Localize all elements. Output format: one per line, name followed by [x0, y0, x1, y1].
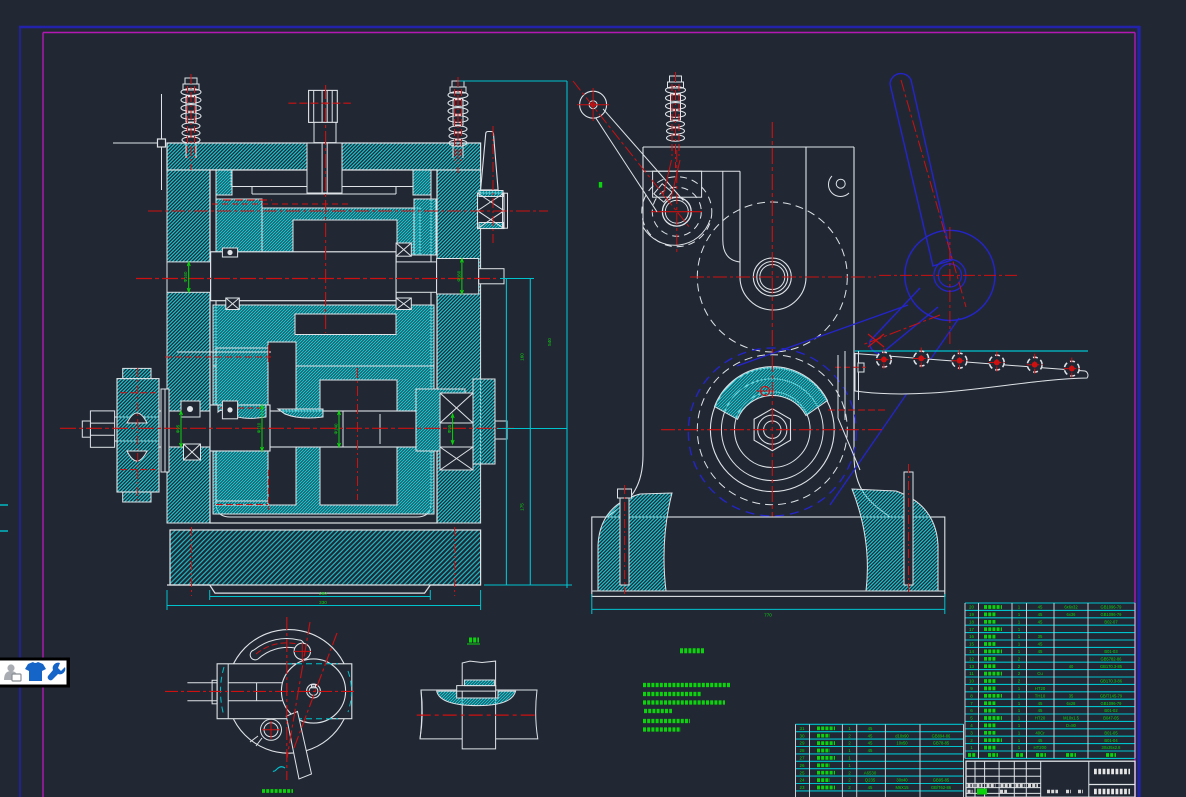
svg-text:45: 45 — [868, 726, 873, 731]
svg-text:GB1096-79: GB1096-79 — [1101, 605, 1123, 610]
svg-text:Φ160: Φ160 — [183, 271, 188, 282]
svg-text:26: 26 — [799, 763, 805, 768]
svg-text:GB894-86: GB894-86 — [932, 733, 951, 738]
svg-text:45: 45 — [1038, 649, 1043, 654]
svg-text:6x6x32: 6x6x32 — [1064, 605, 1078, 610]
svg-text:24: 24 — [799, 778, 805, 783]
svg-text:31: 31 — [799, 726, 805, 731]
svg-text:29: 29 — [799, 741, 805, 746]
svg-text:GB1096-79: GB1096-79 — [1101, 612, 1123, 617]
svg-text:45: 45 — [1038, 619, 1043, 624]
svg-text:28: 28 — [799, 748, 805, 753]
svg-text:18: 18 — [969, 619, 975, 624]
svg-text:35: 35 — [1069, 693, 1074, 698]
svg-text:10: 10 — [969, 679, 975, 684]
svg-text:GB95-85: GB95-85 — [933, 778, 950, 783]
svg-text:B02-07: B02-07 — [1104, 619, 1118, 624]
svg-text:25: 25 — [799, 770, 805, 775]
svg-text:45: 45 — [1038, 701, 1043, 706]
svg-text:GB/T145-79: GB/T145-79 — [1100, 693, 1123, 698]
svg-text:D=80: D=80 — [1066, 723, 1077, 728]
svg-text:45: 45 — [1038, 612, 1043, 617]
svg-text:15: 15 — [969, 642, 975, 647]
svg-text:35: 35 — [1038, 634, 1043, 639]
svg-text:45: 45 — [1038, 642, 1043, 647]
svg-text:B01-05: B01-05 — [1104, 730, 1118, 735]
svg-text:Cu: Cu — [1037, 671, 1043, 676]
svg-text:19: 19 — [969, 612, 975, 617]
svg-text:30x40: 30x40 — [896, 778, 908, 783]
svg-text:B01-03: B01-03 — [1104, 649, 1118, 654]
svg-text:40: 40 — [1069, 664, 1074, 669]
svg-text:45: 45 — [1038, 708, 1043, 713]
svg-text:13: 13 — [969, 664, 975, 669]
svg-text:GB1096-79: GB1096-79 — [1101, 701, 1123, 706]
svg-text:160: 160 — [520, 353, 525, 361]
svg-text:B01-02: B01-02 — [1104, 708, 1118, 713]
svg-text:20: 20 — [969, 605, 975, 610]
svg-text:45: 45 — [868, 748, 873, 753]
svg-text:30: 30 — [799, 733, 805, 738]
svg-text:GB170.3-86: GB170.3-86 — [1100, 679, 1123, 684]
svg-text:175: 175 — [520, 503, 525, 511]
svg-text:45: 45 — [1038, 605, 1043, 610]
svg-text:A6530: A6530 — [864, 770, 877, 775]
svg-text:HT20: HT20 — [1035, 686, 1046, 691]
svg-text:GB5782-86: GB5782-86 — [1101, 656, 1123, 661]
svg-text:16: 16 — [969, 634, 975, 639]
svg-text:HT200: HT200 — [1034, 745, 1048, 750]
svg-text:30x35x2.8: 30x35x2.8 — [1102, 745, 1122, 750]
svg-text:GB78-85: GB78-85 — [933, 741, 950, 746]
svg-text:6x36: 6x36 — [1067, 612, 1077, 617]
svg-text:45: 45 — [868, 733, 873, 738]
svg-text:Φ110: Φ110 — [257, 422, 262, 433]
svg-text:M6X15: M6X15 — [896, 785, 910, 790]
svg-text:Φ95: Φ95 — [176, 424, 181, 433]
svg-text:280: 280 — [319, 591, 327, 596]
svg-text:540: 540 — [547, 338, 552, 346]
svg-text:27: 27 — [799, 756, 805, 761]
svg-text:d10x90: d10x90 — [895, 733, 909, 738]
svg-text:Q235: Q235 — [865, 778, 876, 783]
svg-text:40Cr: 40Cr — [1035, 730, 1045, 735]
svg-text:Φ95: Φ95 — [447, 424, 452, 433]
svg-text:45: 45 — [868, 741, 873, 746]
svg-text:GB/T62-86: GB/T62-86 — [931, 785, 952, 790]
svg-text:B01-04: B01-04 — [1104, 738, 1118, 743]
svg-text:11: 11 — [969, 671, 974, 676]
svg-text:45: 45 — [868, 785, 873, 790]
svg-text:HT20: HT20 — [1035, 716, 1046, 721]
svg-text:Φ140: Φ140 — [334, 423, 339, 434]
svg-text:23: 23 — [799, 785, 805, 790]
svg-text:M10x1.5: M10x1.5 — [1063, 716, 1079, 721]
svg-text:TH10: TH10 — [1035, 693, 1046, 698]
svg-text:770: 770 — [764, 613, 772, 618]
svg-text:B047-05: B047-05 — [1103, 716, 1119, 721]
svg-text:17: 17 — [969, 627, 975, 632]
svg-text:45: 45 — [1038, 738, 1043, 743]
svg-text:GB170.3-85: GB170.3-85 — [1100, 664, 1123, 669]
svg-text:Φ160: Φ160 — [456, 270, 461, 281]
svg-text:330: 330 — [319, 600, 327, 605]
svg-text:12: 12 — [969, 656, 975, 661]
svg-text:14: 14 — [969, 649, 975, 654]
svg-text:6x28: 6x28 — [1067, 701, 1077, 706]
svg-text:10x50: 10x50 — [896, 741, 908, 746]
